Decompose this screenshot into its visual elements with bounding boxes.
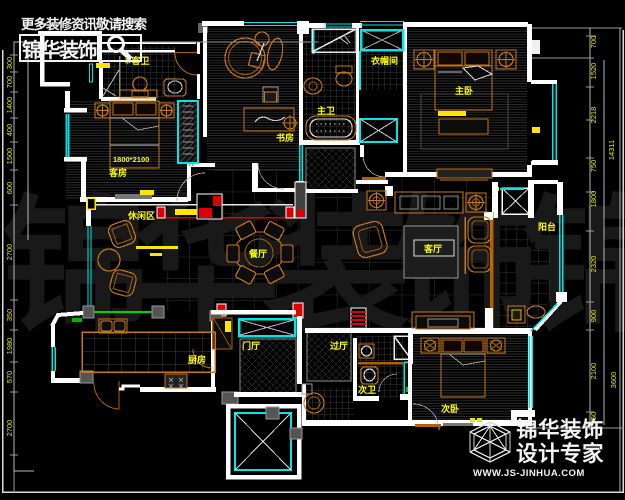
svg-text:700: 700 <box>589 36 598 49</box>
svg-text:更多装修资讯敬请搜索: 更多装修资讯敬请搜索 <box>21 16 147 32</box>
svg-text:1500: 1500 <box>5 148 14 165</box>
svg-text:餐厅: 餐厅 <box>248 248 267 259</box>
svg-text:1520: 1520 <box>589 63 598 80</box>
svg-text:次卫: 次卫 <box>358 384 376 395</box>
svg-text:1400: 1400 <box>5 97 14 114</box>
svg-text:300: 300 <box>5 57 14 70</box>
svg-text:1800*2100: 1800*2100 <box>113 155 149 164</box>
svg-text:过厅: 过厅 <box>330 340 348 351</box>
svg-text:2218: 2218 <box>589 107 598 124</box>
svg-text:350: 350 <box>5 309 14 322</box>
svg-text:主卫: 主卫 <box>317 105 335 116</box>
svg-text:锦: 锦 <box>2 185 150 350</box>
svg-text:2100: 2100 <box>589 363 598 380</box>
svg-text:1980: 1980 <box>5 338 14 355</box>
svg-text:门厅: 门厅 <box>242 340 260 351</box>
svg-text:570: 570 <box>5 371 14 384</box>
svg-text:次卧: 次卧 <box>441 403 459 414</box>
svg-text:厨房: 厨房 <box>188 354 206 365</box>
svg-text:750: 750 <box>589 160 598 173</box>
svg-text:3600: 3600 <box>609 372 618 389</box>
svg-text:客厅: 客厅 <box>423 243 442 254</box>
svg-text:400: 400 <box>5 124 14 137</box>
svg-text:客房: 客房 <box>108 167 127 178</box>
svg-text:书房: 书房 <box>276 132 294 143</box>
svg-text:设计专家: 设计专家 <box>516 441 604 466</box>
svg-text:1800: 1800 <box>589 191 598 208</box>
svg-text:2700: 2700 <box>5 244 14 261</box>
svg-text:主卧: 主卧 <box>455 85 473 96</box>
svg-text:阳台: 阳台 <box>538 221 556 232</box>
svg-text:14311: 14311 <box>607 140 616 160</box>
svg-text:700: 700 <box>5 76 14 89</box>
svg-text:2320: 2320 <box>589 256 598 273</box>
svg-text:2700: 2700 <box>5 420 14 437</box>
svg-text:锦华装饰: 锦华装饰 <box>516 417 604 442</box>
svg-text:900: 900 <box>589 310 598 323</box>
svg-text:衣帽间: 衣帽间 <box>371 55 398 66</box>
svg-text:600: 600 <box>5 182 14 195</box>
svg-text:锦华装饰: 锦华装饰 <box>22 38 97 62</box>
svg-text:休闲区: 休闲区 <box>127 210 155 221</box>
svg-text:WWW.JS-JINHUA.COM: WWW.JS-JINHUA.COM <box>473 468 585 479</box>
